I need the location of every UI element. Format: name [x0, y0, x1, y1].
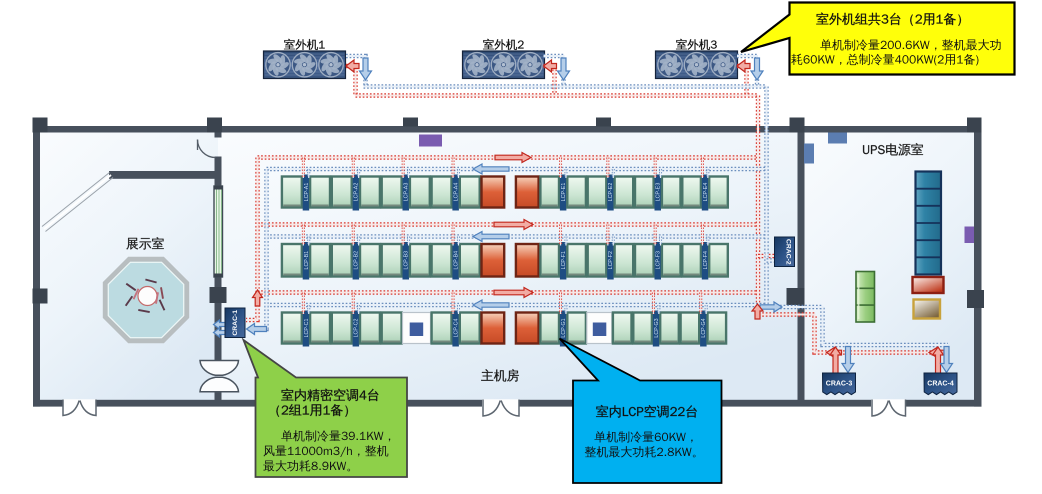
svg-text:LCP-F4: LCP-F4: [703, 251, 709, 269]
svg-text:LCP-B1: LCP-B1: [304, 251, 310, 270]
svg-text:LCP-E3: LCP-E3: [656, 183, 662, 202]
svg-text:LCP-E2: LCP-E2: [608, 183, 614, 202]
svg-text:LCP-G1: LCP-G1: [561, 318, 567, 337]
svg-text:LCP-C1: LCP-C1: [304, 319, 310, 338]
svg-text:LCP-G3: LCP-G3: [654, 318, 660, 337]
svg-text:LCP-F1: LCP-F1: [561, 251, 567, 269]
svg-text:LCP-G4: LCP-G4: [701, 318, 707, 337]
svg-text:LCP-A2: LCP-A2: [354, 183, 360, 202]
svg-text:LCP-A3: LCP-A3: [404, 183, 410, 202]
svg-text:LCP-C2: LCP-C2: [354, 319, 360, 338]
svg-text:LCP-F2: LCP-F2: [608, 251, 614, 269]
svg-text:LCP-C4: LCP-C4: [453, 319, 459, 338]
svg-text:LCP-F3: LCP-F3: [656, 251, 662, 269]
svg-text:LCP-B2: LCP-B2: [354, 251, 360, 270]
svg-text:CRAC-2: CRAC-2: [785, 239, 792, 265]
svg-text:LCP-A1: LCP-A1: [304, 183, 310, 202]
svg-text:LCP-B3: LCP-B3: [404, 251, 410, 270]
svg-text:CRAC-3: CRAC-3: [826, 381, 853, 388]
svg-text:LCP-B4: LCP-B4: [453, 251, 459, 270]
svg-text:LCP-E1: LCP-E1: [561, 183, 567, 202]
svg-text:LCP-A4: LCP-A4: [453, 183, 459, 202]
svg-text:LCP-E4: LCP-E4: [703, 183, 709, 202]
svg-text:CRAC-1: CRAC-1: [232, 310, 239, 336]
svg-text:CRAC-4: CRAC-4: [927, 381, 954, 388]
